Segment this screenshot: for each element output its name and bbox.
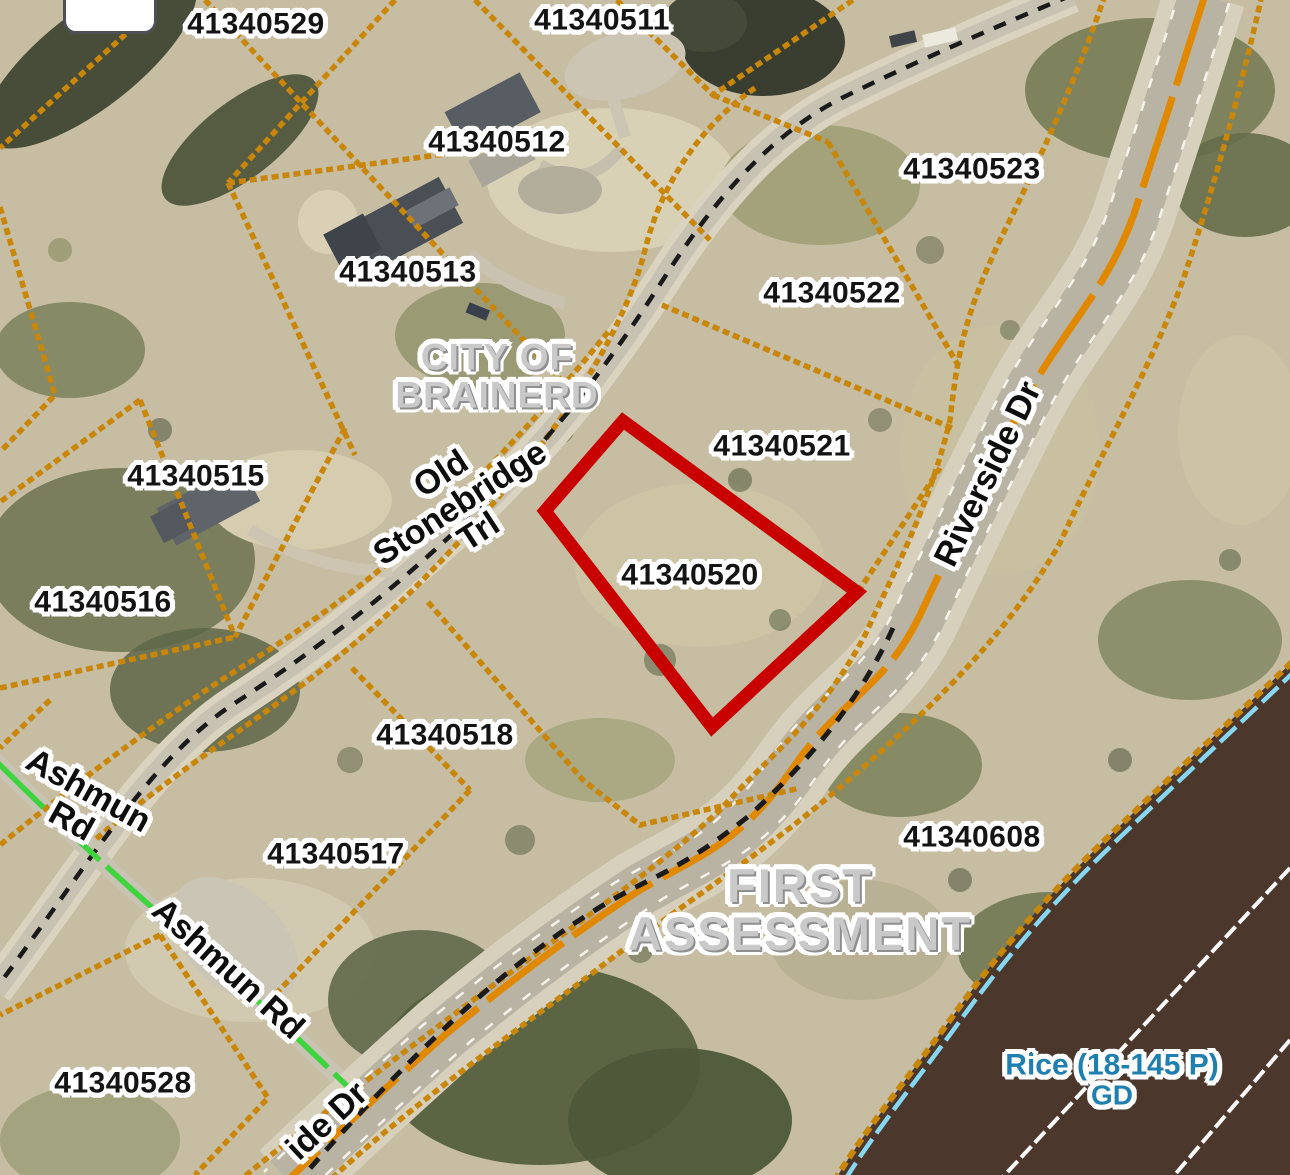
parcel-label: 41340517 — [267, 840, 404, 871]
parcel-label: 41340515 — [127, 462, 264, 493]
parcel-label: 41340516 — [34, 588, 171, 619]
parcel-label: 41340518 — [376, 721, 513, 752]
parcel-label: 41340513 — [339, 258, 476, 289]
parcel-label: 41340521 — [713, 432, 850, 463]
parcel-label: 41340522 — [763, 279, 900, 310]
parcel-label: 41340529 — [187, 10, 324, 41]
plat-name-label: FIRST ASSESSMENT — [628, 862, 972, 958]
parcel-map-canvas[interactable]: 41340529 41340511 41340512 41340513 4134… — [0, 0, 1290, 1175]
city-boundary-label: CITY OF BRAINERD — [395, 338, 598, 413]
parcel-label-highlighted: 41340520 — [621, 561, 758, 592]
tree-shadow-blobs — [663, 0, 845, 96]
parcel-label: 41340523 — [903, 155, 1040, 186]
map-control-button[interactable] — [63, 0, 157, 34]
parcel-label: 41340512 — [428, 128, 565, 159]
parcel-label: 41340608 — [903, 823, 1040, 854]
water-body-label: Rice (18-145 P) GD — [1005, 1050, 1218, 1109]
parcel-label: 41340528 — [54, 1069, 191, 1100]
parcel-label: 41340511 — [534, 6, 670, 37]
